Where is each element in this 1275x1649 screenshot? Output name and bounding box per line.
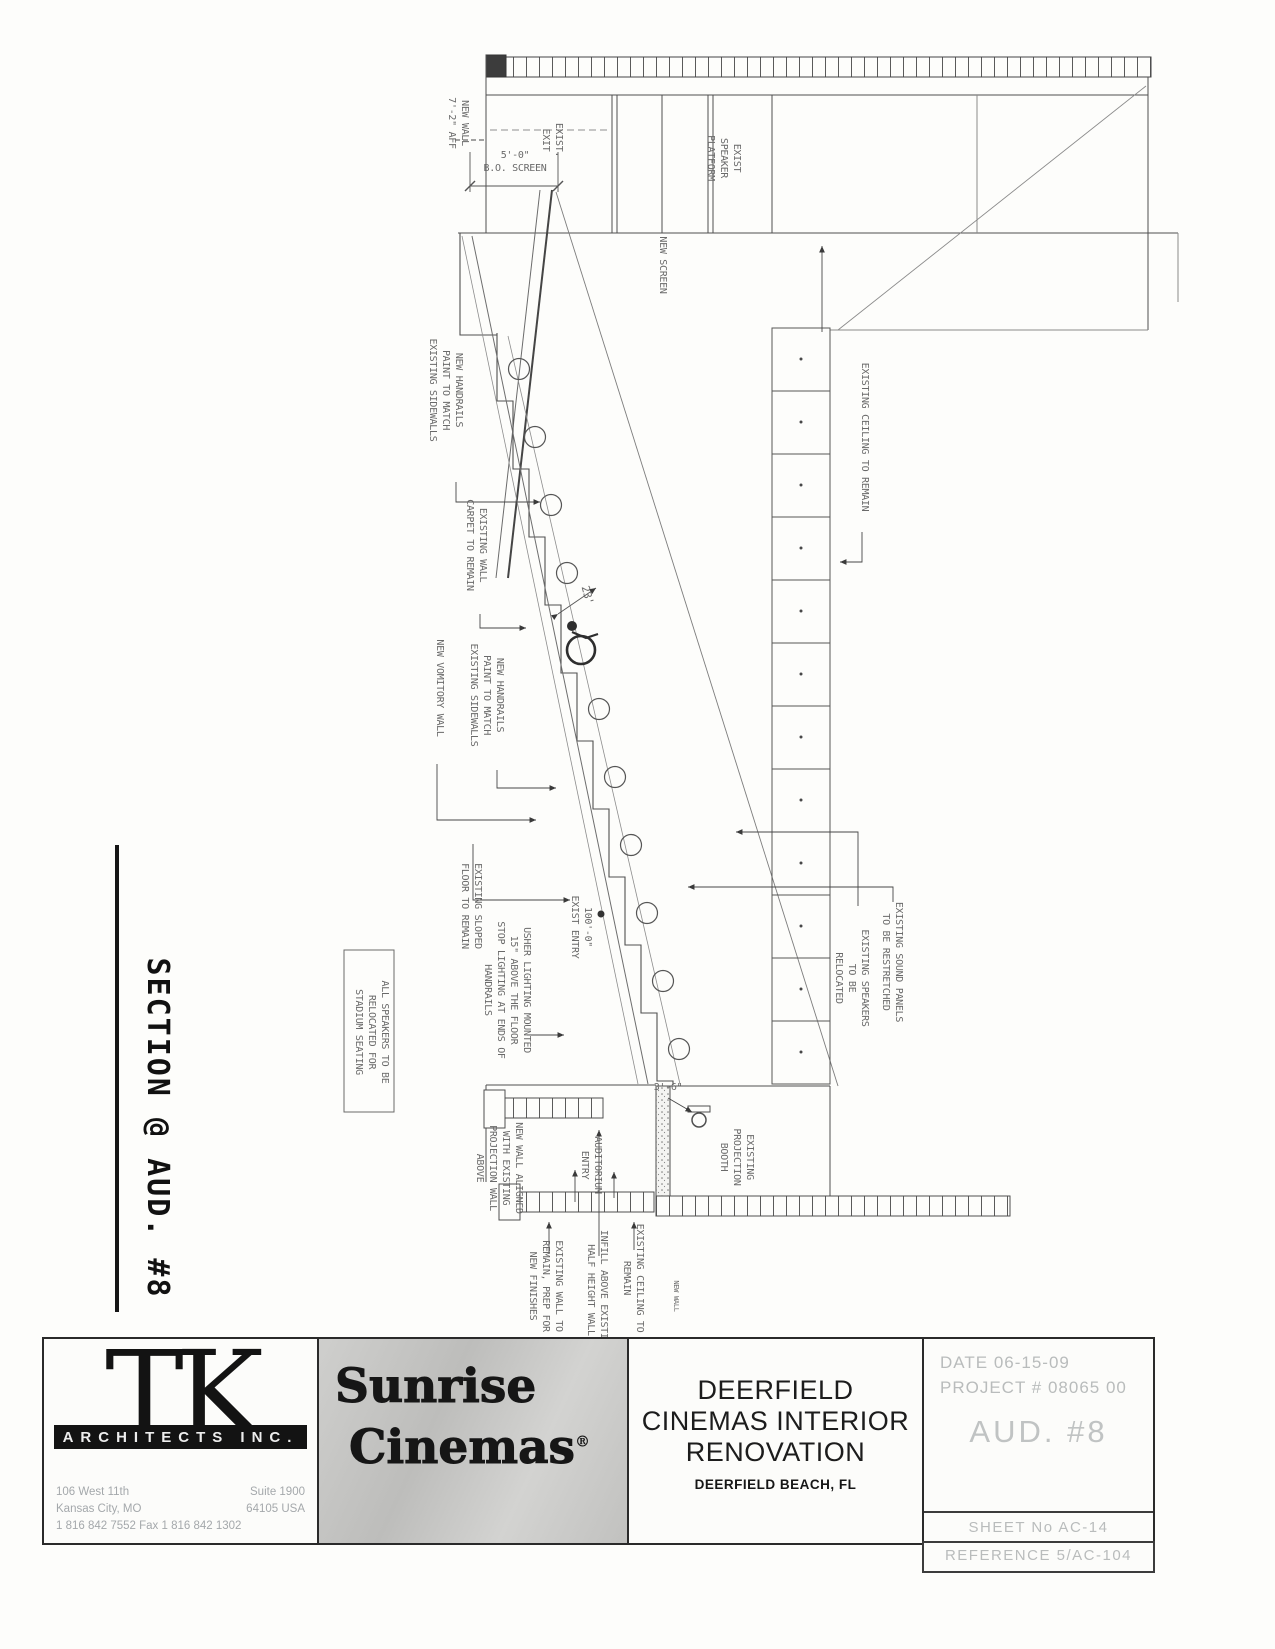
brand-cinemas-text: Cinemas (349, 1420, 575, 1475)
address-street: 106 West 11th (56, 1484, 129, 1501)
new-wall-small-label: NEW WALL (672, 1280, 680, 1311)
new-vomitory-wall-label: NEW VOMITORY WALL (434, 639, 445, 737)
seat-symbol (653, 971, 674, 992)
panel-dot (800, 925, 803, 928)
section-title: SECTION @ AUD. #8 (140, 957, 175, 1298)
architect-address: 106 West 11th Suite 1900 Kansas City, MO… (56, 1484, 305, 1535)
section-title-group: SECTION @ AUD. #8 (117, 845, 175, 1312)
elevation-marker (598, 911, 605, 918)
existing-sloped-floor-label: EXISTING SLOPEDFLOOR TO REMAIN (459, 863, 483, 949)
panel-dot (800, 484, 803, 487)
existing-wall-carpet-label: EXISTING WALLCARPET TO REMAIN (464, 499, 488, 591)
existing-wall-remain-label: EXISTING WALL TOREMAIN, PREP FORNEW FINI… (527, 1240, 564, 1333)
exist-speaker-platform-label: EXISTSPEAKERPLATFORM (705, 135, 742, 181)
seat-symbol (637, 903, 658, 924)
leader-line (840, 532, 862, 562)
brand-cinemas: Cinemas® (349, 1420, 627, 1475)
existing-projection-booth-label: EXISTINGPROJECTIONBOOTH (718, 1128, 755, 1185)
reference-number: REFERENCE 5/AC-104 (922, 1541, 1155, 1573)
project-line-2: CINEMAS INTERIOR (629, 1406, 922, 1437)
drawing-sheet: NEW WALL7'-2" AFFEXIST.EXITEXISTSPEAKERP… (0, 0, 1275, 1649)
bo-screen-dim-label: 5'-0"B.O. SCREEN (484, 150, 547, 174)
dim-3-6-label: 3'-6" (654, 1082, 683, 1093)
seat-symbol (621, 835, 642, 856)
address-suite: Suite 1900 (250, 1484, 305, 1501)
address-city: Kansas City, MO (56, 1501, 141, 1518)
project-line-3: RENOVATION (629, 1437, 922, 1468)
panel-dot (800, 610, 803, 613)
date-row: DATE 06-15-09 (924, 1339, 1153, 1373)
leader-line (668, 1098, 692, 1112)
project-location: DEERFIELD BEACH, FL (629, 1477, 922, 1492)
exist-exit-label: EXIST.EXIT (540, 123, 564, 157)
projector-symbol (692, 1113, 706, 1127)
panel-dot (800, 862, 803, 865)
brand-sunrise: Sunrise (335, 1359, 627, 1414)
address-phone: 1 816 842 7552 Fax 1 816 842 1302 (56, 1518, 305, 1535)
registered-mark: ® (575, 1432, 590, 1450)
panel-dot (800, 421, 803, 424)
panel-dot (800, 358, 803, 361)
exist-entry-elev-label: 100'-0"EXIST ENTRY (569, 896, 593, 959)
new-handrails-lower-label: NEW HANDRAILSPAINT TO MATCHEXISTING SIDE… (468, 644, 505, 747)
existing-ceiling-right-label: EXISTING CEILING TO REMAIN (859, 363, 870, 512)
address-row: 106 West 11th Suite 1900 (56, 1484, 305, 1501)
panel-dot (800, 1051, 803, 1054)
seat-symbol (525, 427, 546, 448)
usher-lighting-note-label: USHER LIGHTING MOUNTED15" ABOVE THE FLOO… (482, 921, 532, 1059)
brand-cell: Sunrise Cinemas® (317, 1339, 627, 1543)
leader-line (480, 614, 526, 628)
screen-lines (496, 190, 838, 1086)
wheelchair-icon (567, 621, 598, 664)
new-wall-aff-label: NEW WALL7'-2" AFF (446, 97, 470, 149)
project-number-label: PROJECT # (940, 1378, 1042, 1397)
project-title-cell: DEERFIELD CINEMAS INTERIOR RENOVATION DE… (627, 1339, 922, 1543)
leader-line (473, 844, 570, 900)
annotation-labels: NEW WALL7'-2" AFFEXIST.EXITEXISTSPEAKERP… (353, 97, 904, 1350)
existing-speakers-relocated-label: EXISTING SPEAKERSTO BERELOCATED (833, 929, 870, 1027)
project-number-row: PROJECT # 08065 00 (924, 1373, 1153, 1398)
projection-booth (656, 1086, 1010, 1216)
seat-symbol (541, 495, 562, 516)
sheet-meta-cell: DATE 06-15-09 PROJECT # 08065 00 AUD. #8… (922, 1339, 1153, 1543)
panel-dot (800, 736, 803, 739)
structure-lines (458, 55, 1178, 330)
leader-line (497, 770, 556, 788)
architect-cell: TK ARCHITECTS INC. 106 West 11th Suite 1… (44, 1339, 317, 1543)
existing-ceiling-bottom-label: EXISTING CEILING TOREMAIN (621, 1224, 645, 1333)
speakers-note-label: ALL SPEAKERS TO BERELOCATED FORSTADIUM S… (353, 981, 390, 1084)
leader-line (437, 764, 536, 820)
address-zip: 64105 USA (246, 1501, 305, 1518)
seat-symbol (605, 767, 626, 788)
project-line-1: DEERFIELD (629, 1375, 922, 1406)
panel-dot (800, 799, 803, 802)
panel-dot (800, 673, 803, 676)
date-value: 06-15-09 (994, 1353, 1070, 1372)
title-block: TK ARCHITECTS INC. 106 West 11th Suite 1… (42, 1337, 1155, 1545)
seat-symbol (557, 563, 578, 584)
panel-dot (800, 547, 803, 550)
dim-23-label: 23' (579, 584, 596, 606)
new-screen-label: NEW SCREEN (657, 236, 668, 293)
ceiling-panels (772, 328, 830, 1084)
seat-symbol (589, 699, 610, 720)
sheet-number: SHEET No AC-14 (924, 1511, 1153, 1543)
architects-banner: ARCHITECTS INC. (54, 1425, 307, 1449)
address-row: Kansas City, MO 64105 USA (56, 1501, 305, 1518)
panel-dot (800, 988, 803, 991)
auditorium-entry-label: AUDITORIUMENTRY (579, 1136, 603, 1193)
existing-sound-panels-label: EXISTING SOUND PANELSTO BE RESTRETCHED (880, 902, 904, 1022)
infill-half-height-label: INFILL ABOVE EXISTINGHALF HEIGHT WALL (585, 1230, 609, 1350)
project-number-value: 08065 00 (1048, 1378, 1127, 1397)
aud-number: AUD. #8 (924, 1414, 1153, 1450)
date-label: DATE (940, 1353, 988, 1372)
new-handrails-upper-label: NEW HANDRAILSPAINT TO MATCHEXISTING SIDE… (427, 339, 464, 442)
